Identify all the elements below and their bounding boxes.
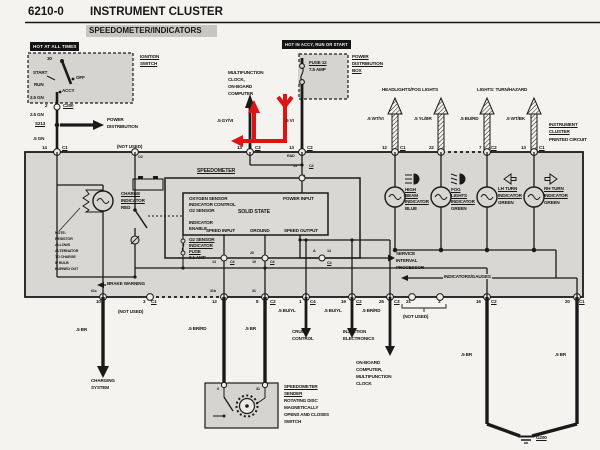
label-blue: BLUE (405, 206, 417, 211)
label-sender: SENDER (284, 391, 302, 396)
label-computer: COMPUTER (228, 91, 253, 96)
label-5-yl-br: .5 YL/BR (414, 116, 432, 121)
label-c4: C4 (310, 299, 316, 304)
label-multifunction: MULTIFUNCTION (228, 70, 263, 75)
label-start: START (33, 70, 47, 75)
label-a: A (313, 249, 316, 253)
label-switch: SWITCH (140, 61, 157, 66)
label-3: 3 (438, 299, 440, 304)
label-brake-warning: BRAKE WARNING (106, 281, 146, 286)
label-2-5-gn: 2.5 GN (30, 112, 44, 117)
label-10: 10 (96, 299, 101, 304)
label-c4: C4 (230, 260, 234, 264)
label-13: 13 (237, 145, 242, 150)
label-indicator-control: INDICATOR CONTROL (189, 202, 236, 207)
label-green: GREEN (498, 200, 514, 205)
label-multifunction: MULTIFUNCTION (356, 374, 391, 379)
label-not-used: (NOT USED) (403, 314, 428, 319)
label-processor: PROCESSOR (396, 265, 424, 270)
label-19: 19 (341, 299, 346, 304)
label-5-vi: .5 VI (285, 118, 294, 123)
label-enable: ENABLE (189, 226, 207, 231)
label-allows: ALLOWS (55, 243, 70, 247)
label-c3: C3 (255, 145, 261, 150)
label-0-1-amp: 0.1 AMP (189, 255, 206, 260)
label-19: 19 (252, 260, 256, 264)
label-c4: C4 (309, 164, 313, 168)
label-speedometer: SPEEDOMETER (284, 384, 318, 389)
label-c2: C2 (356, 299, 362, 304)
label-c1: C1 (539, 145, 545, 150)
label-to-charge: TO CHARGE (55, 255, 76, 259)
label-switch: SWITCH (284, 419, 301, 424)
label-61c: 61c (91, 289, 97, 293)
label-indicators-gauges: INDICATORS/GAUGES (443, 274, 492, 279)
label-distribution: DISTRIBUTION (107, 124, 138, 129)
label-charge: CHARGE (121, 191, 140, 196)
label-indicator: INDICATOR (451, 199, 475, 204)
label-5-wt-bk: .5 WT/BK (506, 116, 525, 121)
label-31: 31 (256, 387, 260, 391)
label-c1: C1 (579, 299, 585, 304)
label-7-5-amp: 7.5 AMP (309, 67, 326, 72)
label-9: 9 (303, 174, 305, 178)
label-cluster: CLUSTER (549, 129, 570, 134)
label-alternator: ALTERNATOR (55, 249, 78, 253)
label-indicator: INDICATOR (121, 198, 145, 203)
label-not-used: (NOT USED) (118, 309, 143, 314)
label-14: 14 (42, 145, 47, 150)
label-12: 12 (382, 145, 387, 150)
label-30: 30 (47, 56, 52, 61)
label-c2: C2 (307, 145, 313, 150)
label-6: 6 (217, 387, 219, 391)
label-speedometer: SPEEDOMETER (197, 169, 235, 175)
label-not-used: (NOT USED) (117, 144, 142, 149)
label-system: SYSTEM (91, 385, 109, 390)
label-5-bu-yl: .5 BU/YL (324, 308, 342, 313)
label-5-gn: .5 GN (33, 136, 44, 141)
label-14: 14 (212, 260, 216, 264)
label-o2-sensor: O2 SENSOR (189, 237, 214, 242)
label-clock: CLOCK (356, 381, 372, 386)
label-1: 1 (299, 299, 301, 304)
label-c4: C4 (270, 260, 274, 264)
label-5-br: .5 BR (461, 352, 472, 357)
label-c1: C1 (62, 145, 68, 150)
label-g200: G200 (536, 435, 547, 440)
label-ground: GROUND (250, 228, 270, 233)
label-31b: 31b (210, 289, 216, 293)
label-off: OFF (76, 75, 85, 80)
label-13: 13 (289, 145, 294, 150)
label-16: 16 (476, 299, 481, 304)
label-14: 14 (293, 164, 297, 168)
label-lh-turn: LH TURN (498, 186, 517, 191)
label-magnetically: MAGNETICALLY (284, 405, 318, 410)
label-rh-turn: RH TURN (544, 186, 564, 191)
label-distribution: DISTRIBUTION (352, 61, 383, 66)
label-22: 22 (429, 145, 434, 150)
label-burned-out: BURNED OUT (55, 267, 78, 271)
wiring-diagram-page: 6210-0 INSTRUMENT CLUSTER SPEEDOMETER/IN… (0, 0, 600, 450)
label-c2: C2 (270, 299, 276, 304)
label-accy: ACCY (62, 88, 74, 93)
label-20: 20 (250, 251, 254, 255)
label-clock: CLOCK, (228, 77, 245, 82)
label-c4: C4 (327, 261, 331, 265)
label-indicator: INDICATOR (544, 193, 568, 198)
label-beam: BEAM (405, 193, 418, 198)
label-injection: INJECTION (343, 329, 366, 334)
label-fog: FOG (451, 187, 461, 192)
label-on-board: ON-BOARD (356, 360, 380, 365)
label-31: 31 (252, 289, 256, 293)
label-power-input: POWER INPUT (283, 196, 314, 201)
label-interval: INTERVAL (396, 258, 417, 263)
label-cruise: CRUISE (292, 329, 308, 334)
label-printed-circuit: PRINTED CIRCUIT (549, 137, 587, 142)
label-indicator: INDICATOR (498, 193, 522, 198)
label-control: CONTROL (292, 336, 314, 341)
label-3: 3 (143, 299, 145, 304)
label-c1: C1 (151, 299, 157, 304)
label-lights: LIGHTS (451, 193, 467, 198)
label-5-br-rd: .5 BR/RD (362, 308, 380, 313)
label-c1: C1 (400, 145, 406, 150)
label-o2-sensor: O2 SENSOR (189, 208, 214, 213)
label-indicator: INDICATOR (189, 243, 213, 248)
label-12: 12 (212, 299, 217, 304)
label-c200: C200 (63, 103, 73, 108)
label-opens-and-closes: OPENS AND CLOSES (284, 412, 329, 417)
label-ignition: IGNITION (140, 54, 159, 59)
label-computer: COMPUTER, (356, 367, 382, 372)
label-power: POWER (107, 117, 124, 122)
label-resistor: RESISTOR (55, 237, 73, 241)
label-note: NOTE: (55, 231, 66, 235)
label-s213: S213 (35, 121, 45, 126)
label-indicator: INDICATOR (405, 199, 429, 204)
label-high: HIGH (405, 187, 416, 192)
label-5-bu-yl: .5 BU/YL (278, 308, 296, 313)
label-fuse-12: FUSE 12 (309, 60, 327, 65)
label-c2: C2 (491, 299, 497, 304)
label-o2: O2 (138, 155, 143, 159)
label-5-br: .5 BR (76, 327, 87, 332)
label-power: POWER (352, 54, 369, 59)
label-5-br-rd: .5 BR/RD (188, 326, 206, 331)
label-run: RUN (34, 82, 44, 87)
label-fuse: FUSE (189, 249, 201, 254)
label-5-wt-vi: .5 WT/VI (367, 116, 384, 121)
label-rotating-disc: ROTATING DISC (284, 398, 318, 403)
label-2: 2 (45, 103, 47, 108)
label-headlights-fog-lights: HEADLIGHTS/FOG LIGHTS (382, 87, 438, 92)
label-20: 20 (565, 299, 570, 304)
label-5-br: .5 BR (555, 352, 566, 357)
label-green: GREEN (451, 206, 467, 211)
label-7: 7 (479, 145, 481, 150)
label-indicator: INDICATOR (189, 220, 213, 225)
label-speed-output: SPEED OUTPUT (284, 228, 318, 233)
label-c3: C3 (394, 299, 400, 304)
label-box: BOX (352, 68, 362, 73)
label-instrument: INSTRUMENT (549, 122, 578, 127)
label-charging: CHARGING (91, 378, 115, 383)
label-rad: RAD (287, 154, 295, 158)
label-electronics: ELECTRONICS (343, 336, 374, 341)
label-on-board: ON-BOARD (228, 84, 252, 89)
label-2-5-gn: 2.5 GN (30, 95, 44, 100)
label-14: 14 (327, 249, 331, 253)
label-5-bu-rd: .5 BU/RD (460, 116, 478, 121)
label-solid-state: SOLID STATE (238, 210, 270, 216)
label-21: 21 (406, 299, 411, 304)
label-c2: C2 (491, 145, 497, 150)
label-5-gy-vi: .5 GY/VI (217, 118, 233, 123)
label-8: 8 (256, 299, 258, 304)
label-lights-turn-hazard: LIGHTS: TURN/HAZARD (477, 87, 527, 92)
label-service: SERVICE (396, 251, 415, 256)
label-oxygen-sensor: OXYGEN SENSOR (189, 196, 227, 201)
label-red: RED (121, 205, 130, 210)
label-speed-input: SPEED INPUT (206, 228, 235, 233)
label-green: GREEN (544, 200, 560, 205)
label-if-bulb: IF BULB (55, 261, 69, 265)
label-5-br: .5 BR (245, 326, 256, 331)
diagram-labels: IGNITIONSWITCH30STARTRUNOFFACCY2.5 GN2C2… (0, 0, 600, 450)
label-26: 26 (379, 299, 384, 304)
label-13: 13 (521, 145, 526, 150)
